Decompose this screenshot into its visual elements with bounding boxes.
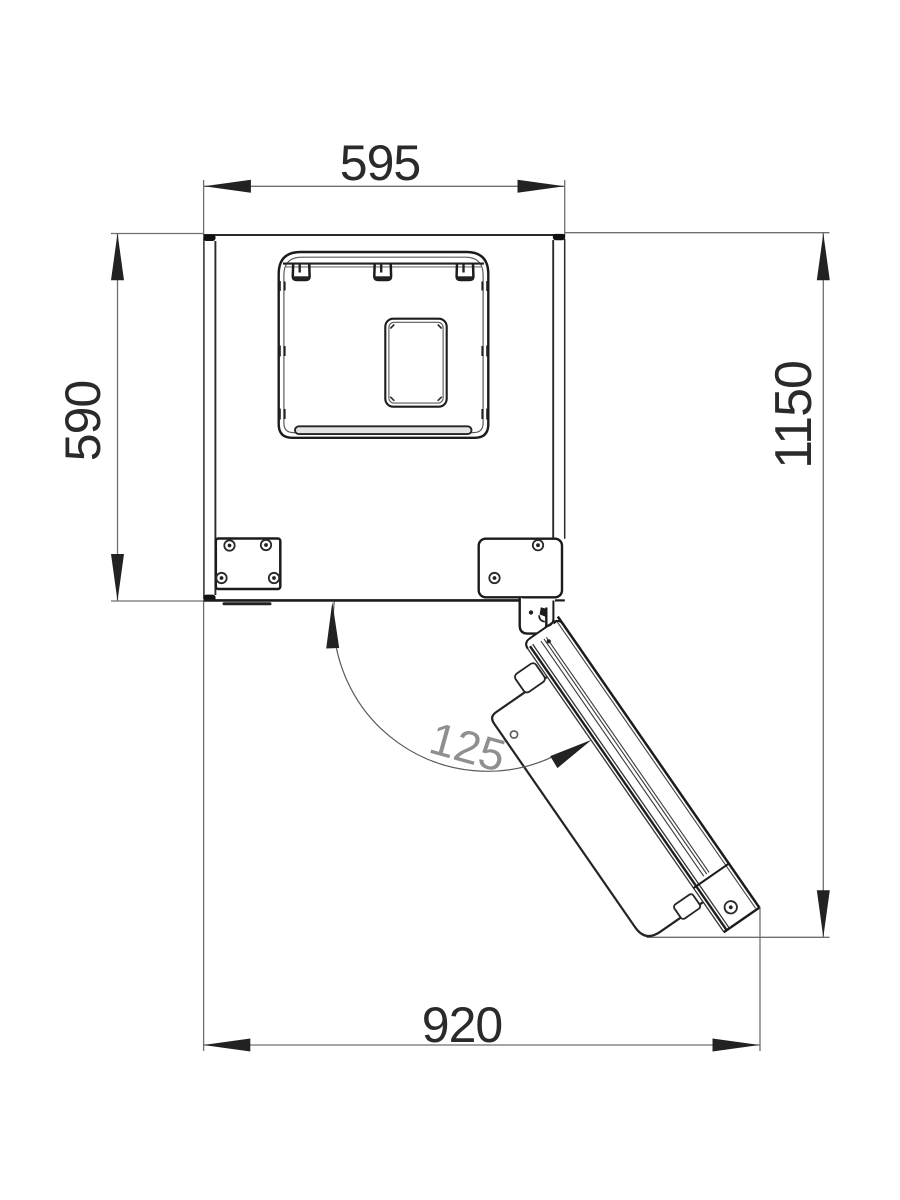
svg-text:590: 590 [55,381,111,461]
svg-text:1150: 1150 [765,361,823,469]
svg-text:595: 595 [340,135,420,191]
